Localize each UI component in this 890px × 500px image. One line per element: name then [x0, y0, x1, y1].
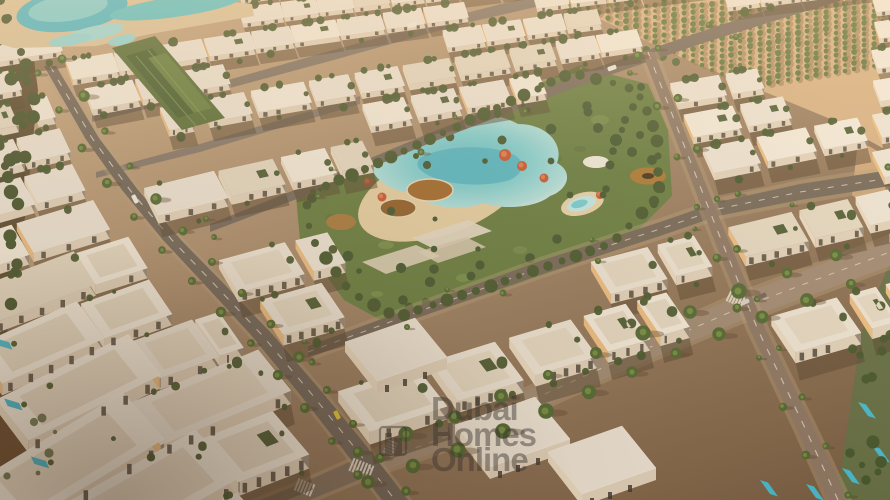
- svg-text:Online: Online: [431, 441, 528, 478]
